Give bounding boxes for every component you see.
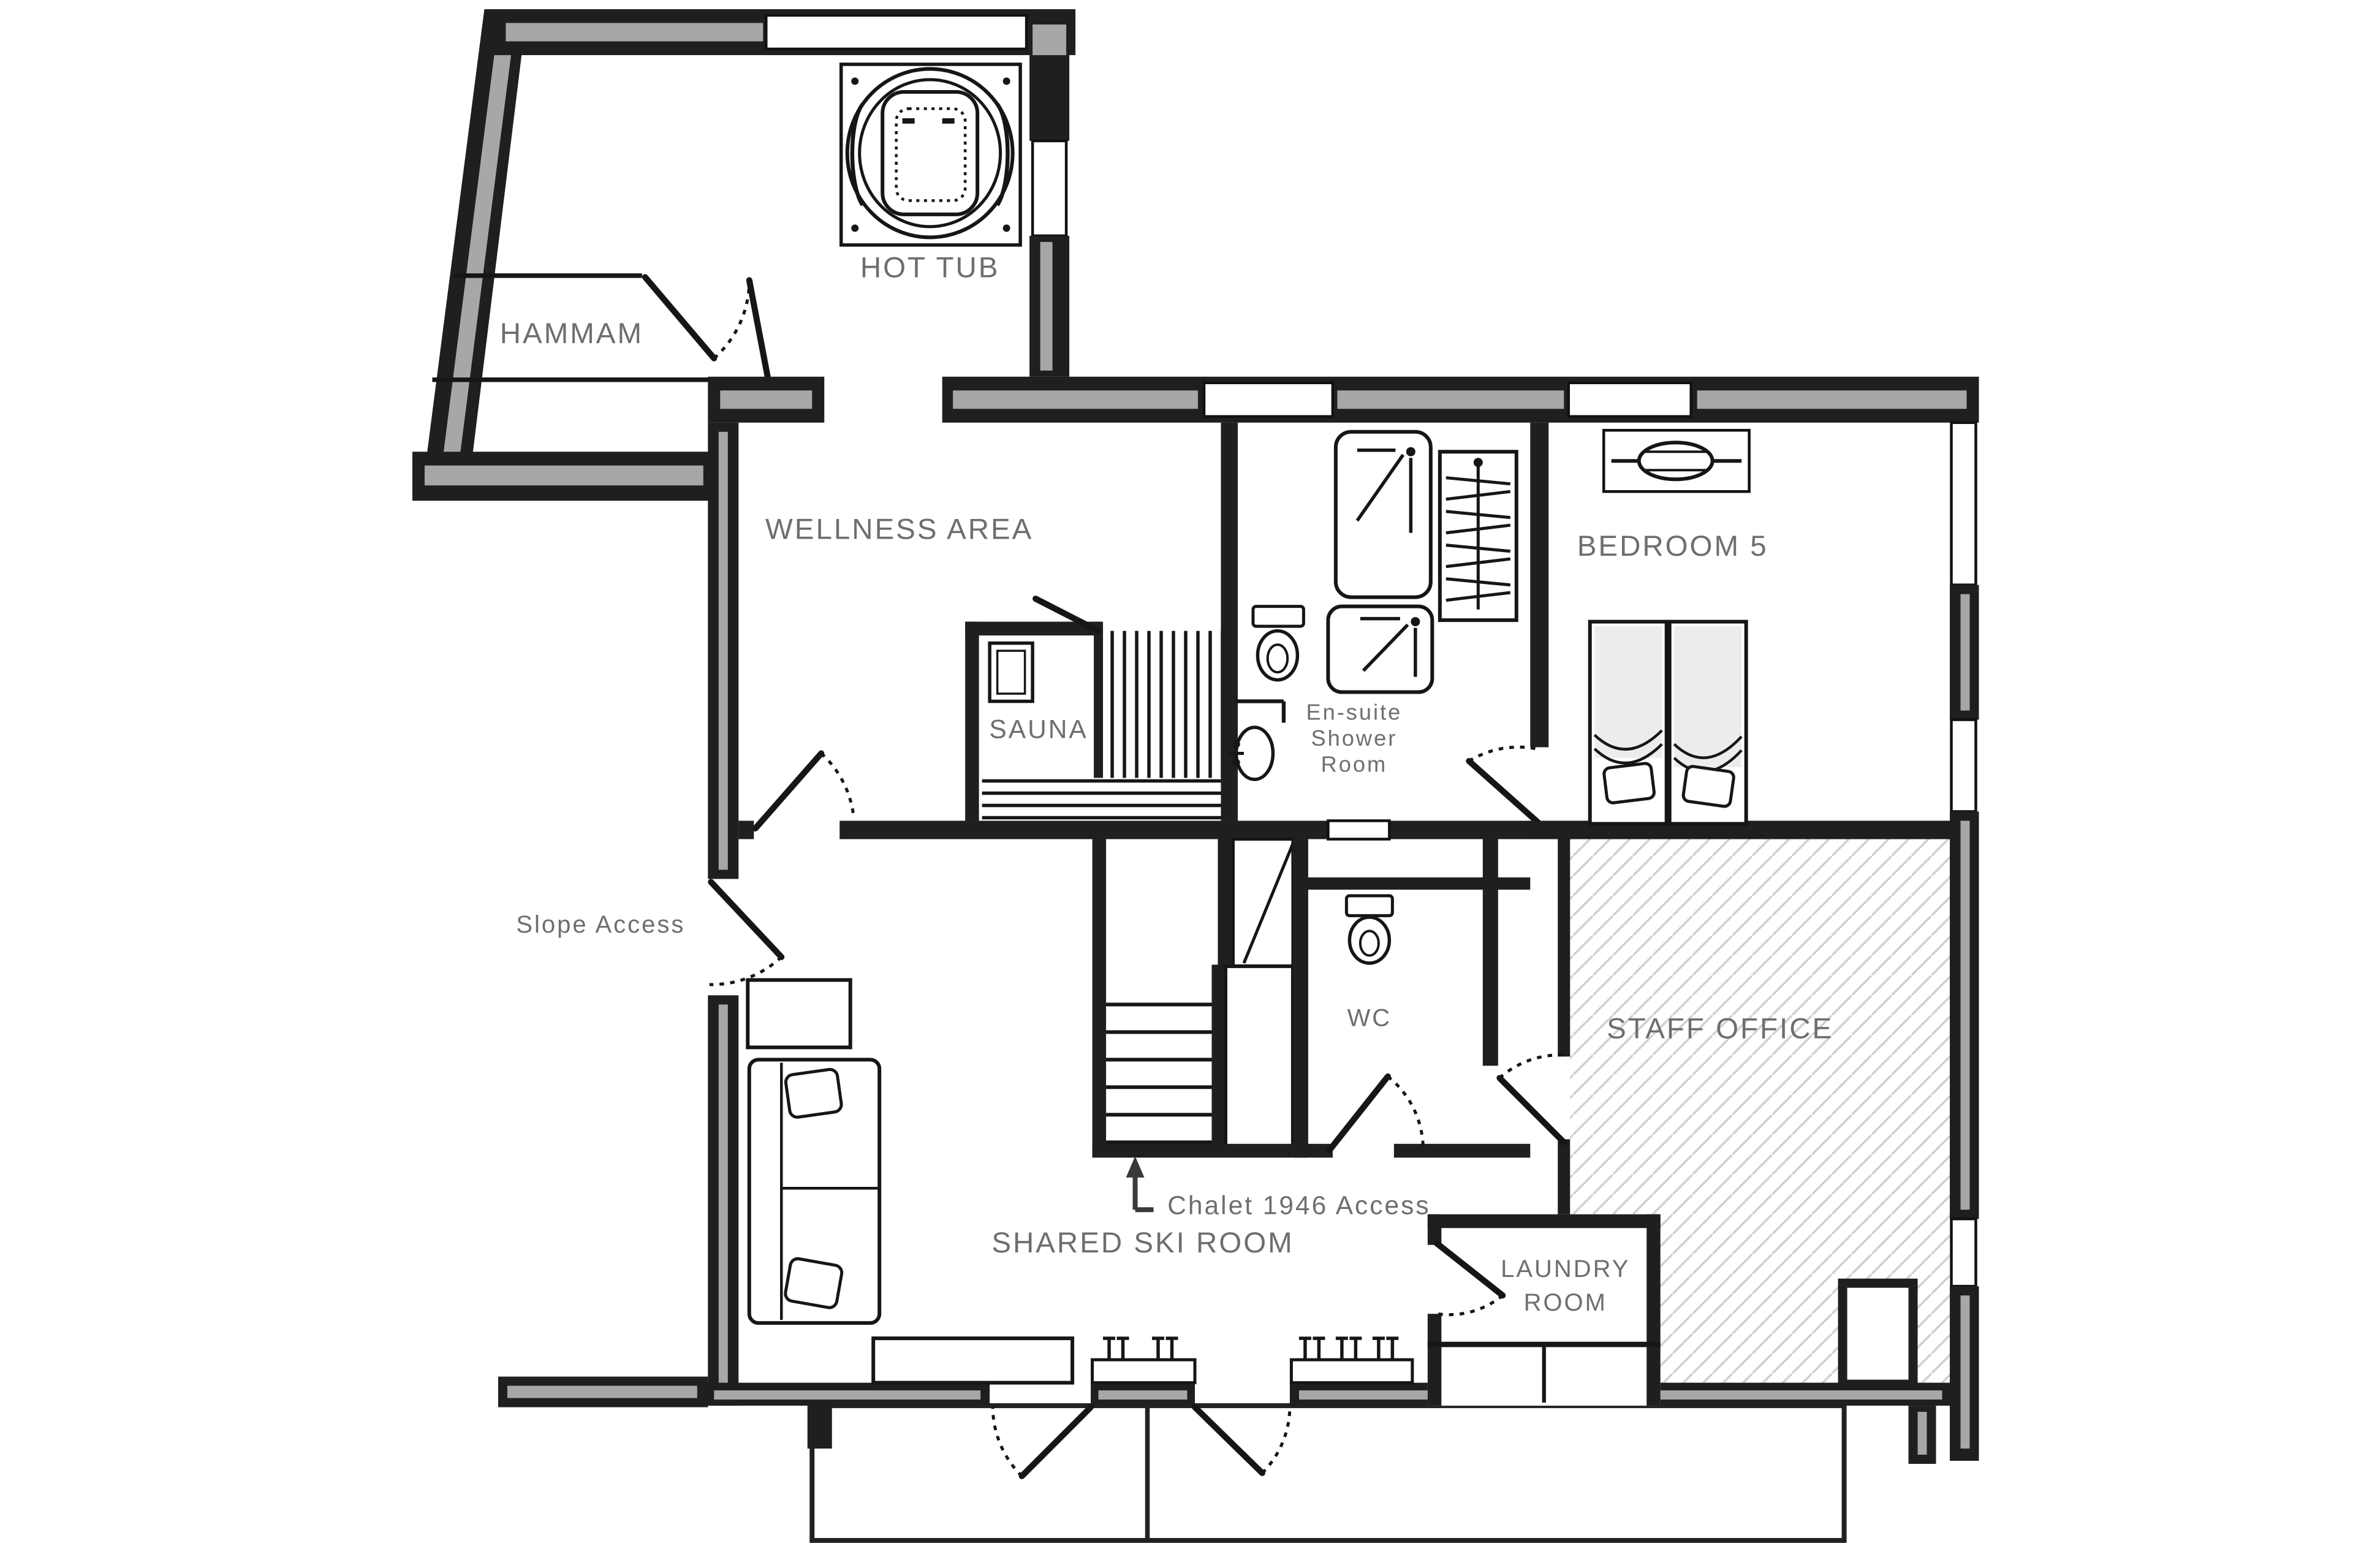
terrace-outline — [812, 1406, 1844, 1540]
pillow-icon — [1604, 763, 1655, 803]
lower-terrace — [812, 1406, 1844, 1540]
north-wall-core — [1697, 390, 1967, 409]
ski-bench — [873, 1338, 1072, 1382]
platform-bolt-icon — [851, 224, 858, 232]
terrace-window — [766, 15, 1026, 49]
hammam-door-jamb — [749, 280, 768, 376]
terrace-right-wall-core — [1040, 242, 1053, 371]
toilet-cistern-icon — [1346, 896, 1392, 915]
office-west-wall — [1558, 1139, 1570, 1225]
pillow-icon — [1683, 766, 1735, 808]
ski-room-label: SHARED SKI ROOM — [991, 1227, 1294, 1259]
wellness-south-wall-stub — [738, 820, 754, 839]
east-window-2 — [1952, 720, 1976, 812]
hammam-label: HAMMAM — [500, 317, 643, 350]
terrace-right-window — [1033, 141, 1066, 236]
sink-tap-icon — [1232, 740, 1240, 748]
sofa — [749, 1059, 879, 1323]
bedroom-door-arc — [1469, 747, 1536, 761]
toilet-cistern-icon — [1253, 607, 1303, 626]
top-wall-stub-core — [720, 390, 812, 409]
terrace-right-wall-upper — [1029, 55, 1069, 141]
towel-radiator-valve-icon — [1474, 458, 1483, 467]
side-table — [748, 980, 850, 1047]
platform-bolt-icon — [1003, 224, 1010, 232]
chalet-access-arrow-icon — [1126, 1156, 1154, 1210]
ensuite-label-1: En-suite — [1306, 700, 1402, 725]
understair-closet — [1233, 839, 1292, 966]
hot-tub-area: HOT TUB — [841, 64, 1020, 284]
laundry-east-wall — [1646, 1214, 1660, 1406]
bed-left — [1590, 622, 1667, 824]
sauna-label: SAUNA — [989, 716, 1088, 744]
wellness-area-label: WELLNESS AREA — [765, 513, 1033, 546]
laundry-label-2: ROOM — [1524, 1289, 1607, 1316]
stair-west-wall — [1093, 839, 1106, 1156]
platform-bolt-icon — [851, 77, 858, 85]
stair-landing — [1226, 966, 1293, 1147]
staff-office-label: STAFF OFFICE — [1607, 1012, 1833, 1045]
laundry-label-1: LAUNDRY — [1501, 1256, 1630, 1282]
terrace-top-wall-core — [506, 23, 763, 41]
sauna-stove-inner-icon — [998, 651, 1025, 694]
office-door-leaf — [1499, 1078, 1564, 1142]
bedroom-door-leaf — [1469, 761, 1537, 822]
ensuite-label-2: Shower — [1311, 725, 1397, 751]
wc-east-wall — [1483, 839, 1498, 1066]
ensuite-label-3: Room — [1321, 752, 1388, 777]
stair-east-wall — [1211, 964, 1225, 1156]
office-west-wall — [1558, 839, 1570, 1056]
platform-bolt-icon — [1003, 77, 1010, 85]
wc-door-arc — [1388, 1077, 1423, 1145]
bedroom-west-wall — [1530, 423, 1548, 748]
slope-access-label: Slope Access — [516, 911, 685, 938]
office-door-arc — [1499, 1055, 1564, 1078]
sink-tap-icon — [1232, 759, 1240, 766]
stair-south-wall — [1093, 1144, 1293, 1157]
chalet-access-label: Chalet 1946 Access — [1167, 1192, 1430, 1221]
north-wall-core — [1337, 390, 1564, 409]
wc-room: WC — [1293, 839, 1530, 1157]
stair-steps — [1106, 1004, 1211, 1142]
wc-label: WC — [1347, 1004, 1392, 1031]
east-window-1 — [1952, 423, 1976, 585]
wc-door-leaf — [1330, 1077, 1388, 1150]
west-outer-path-core — [507, 1386, 697, 1398]
bed-right — [1670, 622, 1746, 824]
sauna-east-wall — [1094, 622, 1103, 778]
sauna-bench-horizontal-slats — [982, 781, 1226, 818]
terrace-jog-wall — [808, 1406, 832, 1449]
south-wall-core — [1099, 1390, 1188, 1399]
radiator-icon — [1639, 442, 1713, 479]
wc-south-wall — [1394, 1144, 1530, 1157]
sauna-west-wall — [965, 622, 979, 821]
bedroom5-label: BEDROOM 5 — [1577, 530, 1768, 562]
sauna-room: SAUNA — [965, 599, 1226, 820]
bedroom-5: BEDROOM 5 — [1469, 423, 1956, 839]
west-wall-core — [719, 1004, 728, 1396]
pillow-icon — [785, 1069, 843, 1118]
boot-dryer-rack-1 — [1093, 1338, 1195, 1382]
east-wall-core — [1961, 594, 1970, 711]
east-wall-core — [1961, 1295, 1970, 1449]
slope-access-door-leaf — [711, 882, 781, 956]
boot-dryer-rack-2 — [1291, 1338, 1412, 1382]
east-wall-core — [1961, 820, 1970, 1210]
terrace-bottom-wall-core — [425, 466, 703, 485]
wellness-door-arc — [821, 754, 853, 815]
shower-head-icon — [1411, 617, 1420, 626]
east-outer-path-core — [1918, 1412, 1927, 1455]
sauna-bench-vertical-slats — [1112, 631, 1222, 778]
shower-head-icon — [1406, 447, 1415, 456]
pillow-icon — [784, 1257, 843, 1309]
chalet-floorplan: HOT TUB HAMMAM — [0, 0, 2353, 1568]
west-wall-core — [719, 432, 728, 870]
shower-tray-icon — [1336, 432, 1431, 597]
hammam-door-leaf — [645, 277, 714, 358]
laundry-west-wall — [1428, 1314, 1441, 1406]
wellness-door-leaf — [756, 754, 821, 828]
stair-upper-wall — [1218, 839, 1233, 966]
ensuite-door-threshold — [1328, 820, 1389, 839]
office-closet — [1843, 1283, 1913, 1384]
laundry-north-wall — [1428, 1214, 1661, 1228]
hammam-door-arc — [714, 277, 749, 358]
hot-tub-label: HOT TUB — [860, 251, 1000, 284]
east-window-3 — [1952, 1219, 1976, 1286]
laundry-room: LAUNDRY ROOM — [1428, 1214, 1661, 1406]
north-window-2 — [1569, 383, 1691, 417]
north-wall-core — [953, 390, 1198, 409]
south-wall-core — [714, 1390, 980, 1399]
north-window-1 — [1204, 383, 1333, 417]
staircase — [1093, 839, 1293, 1157]
